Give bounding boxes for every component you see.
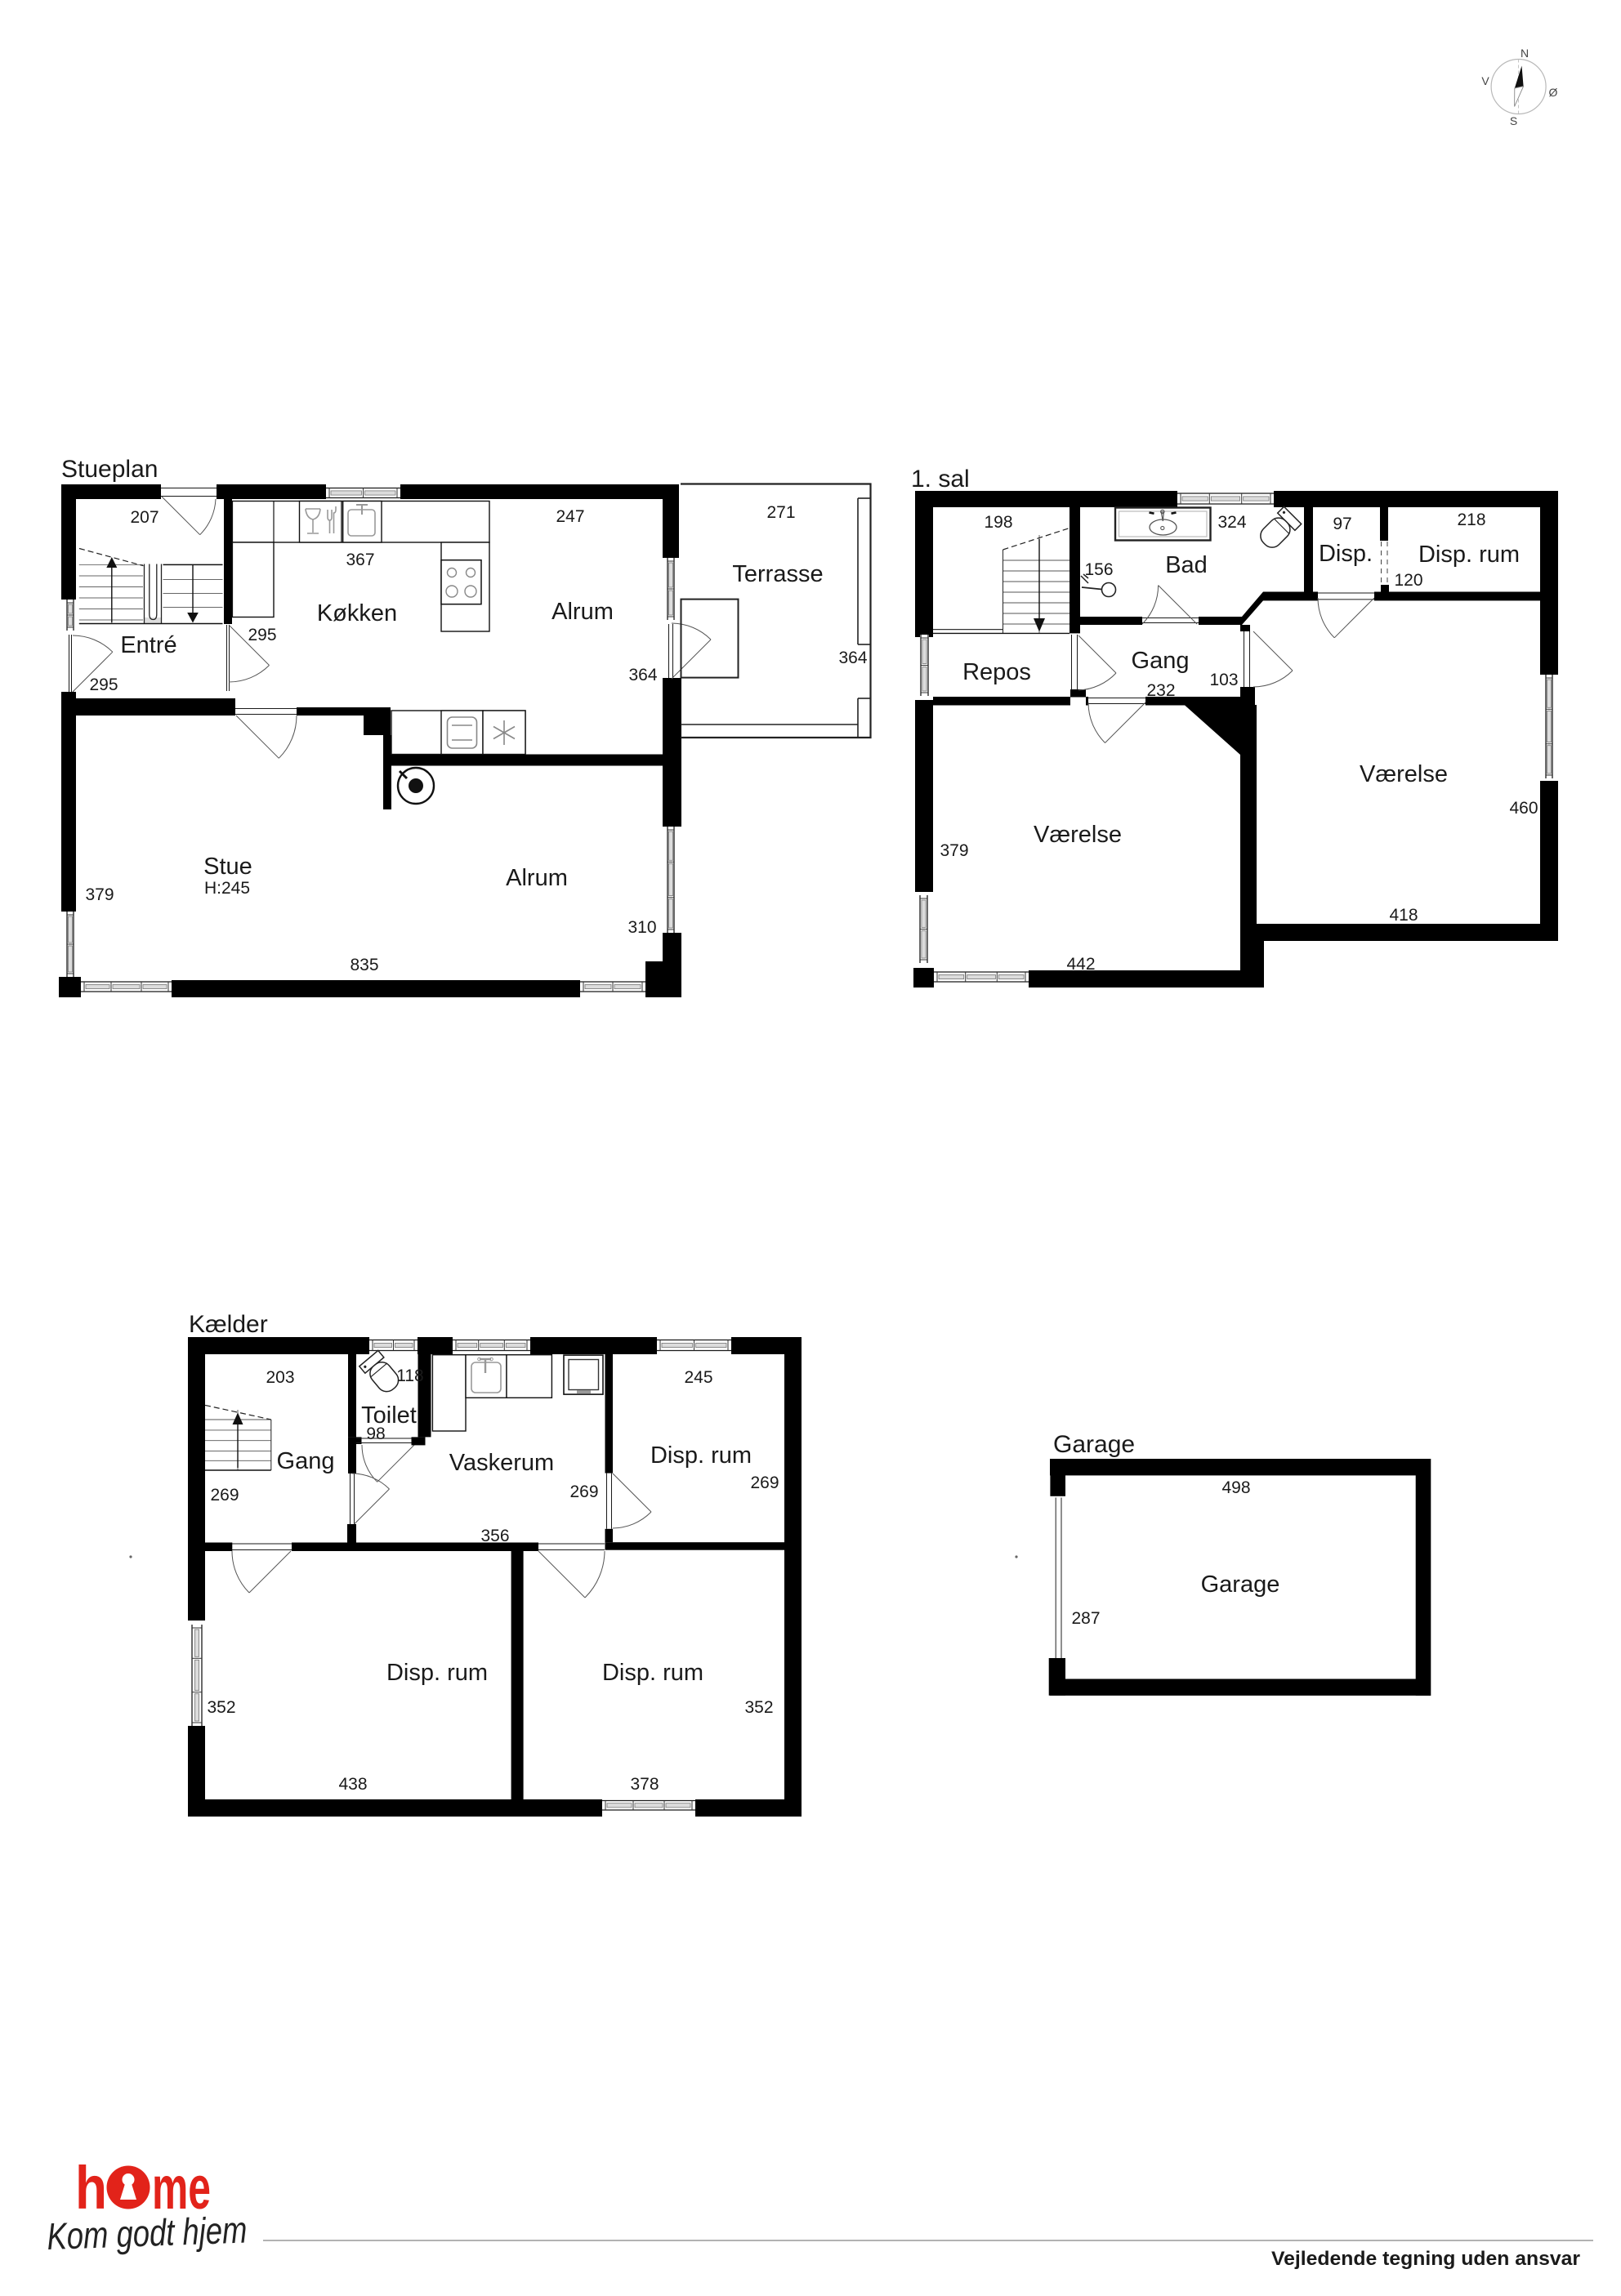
svg-text:271: 271 (766, 503, 795, 522)
svg-text:203: 203 (266, 1368, 294, 1387)
svg-text:Disp. rum: Disp. rum (602, 1660, 703, 1686)
svg-text:367: 367 (346, 551, 374, 569)
svg-text:98: 98 (366, 1424, 385, 1443)
svg-text:379: 379 (940, 841, 968, 860)
svg-text:Kom godt hjem: Kom godt hjem (47, 2208, 248, 2258)
svg-text:Gang: Gang (277, 1448, 335, 1474)
svg-text:352: 352 (744, 1698, 773, 1717)
svg-text:103: 103 (1209, 671, 1238, 689)
svg-text:442: 442 (1066, 955, 1095, 974)
svg-text:364: 364 (838, 649, 867, 667)
svg-text:97: 97 (1333, 515, 1351, 533)
svg-text:498: 498 (1221, 1478, 1250, 1497)
svg-text:Repos: Repos (962, 659, 1031, 685)
svg-text:H:245: H:245 (204, 879, 250, 898)
svg-text:269: 269 (569, 1482, 598, 1501)
svg-text:118: 118 (396, 1366, 423, 1385)
svg-text:120: 120 (1394, 571, 1422, 590)
svg-text:295: 295 (248, 626, 276, 644)
svg-text:352: 352 (207, 1698, 235, 1717)
svg-text:269: 269 (750, 1473, 779, 1492)
svg-text:269: 269 (210, 1486, 239, 1505)
svg-text:Værelse: Værelse (1034, 822, 1122, 848)
svg-text:207: 207 (130, 508, 159, 527)
svg-text:Vaskerum: Vaskerum (449, 1450, 554, 1476)
svg-text:198: 198 (984, 513, 1012, 532)
svg-text:324: 324 (1217, 513, 1246, 532)
svg-text:Værelse: Værelse (1360, 761, 1448, 787)
svg-text:V: V (1481, 74, 1489, 87)
svg-text:Køkken: Køkken (317, 600, 397, 626)
svg-text:Stueplan: Stueplan (61, 456, 158, 483)
svg-text:Disp. rum: Disp. rum (650, 1442, 752, 1469)
svg-text:835: 835 (350, 956, 378, 974)
svg-text:Alrum: Alrum (551, 599, 614, 625)
svg-text:Terrasse: Terrasse (732, 561, 823, 587)
svg-text:Kælder: Kælder (189, 1311, 268, 1338)
svg-text:156: 156 (1084, 560, 1113, 579)
svg-text:h: h (75, 2154, 107, 2222)
svg-text:287: 287 (1071, 1609, 1100, 1628)
svg-text:438: 438 (338, 1775, 367, 1794)
svg-text:Alrum: Alrum (506, 865, 568, 891)
svg-text:Entré: Entré (120, 632, 176, 658)
svg-text:1. sal: 1. sal (911, 466, 970, 493)
svg-text:356: 356 (480, 1527, 509, 1545)
svg-text:Stue: Stue (203, 854, 252, 880)
svg-text:245: 245 (684, 1368, 712, 1387)
svg-text:218: 218 (1457, 510, 1485, 529)
svg-text:Bad: Bad (1165, 552, 1208, 578)
svg-text:Garage: Garage (1053, 1431, 1135, 1458)
svg-text:Ø: Ø (1549, 86, 1558, 99)
svg-text:Garage: Garage (1201, 1572, 1280, 1598)
svg-text:460: 460 (1509, 799, 1538, 818)
svg-text:295: 295 (89, 675, 118, 694)
svg-text:N: N (1521, 47, 1529, 60)
svg-text:247: 247 (556, 507, 584, 526)
svg-text:Disp. rum: Disp. rum (1418, 542, 1520, 568)
svg-text:Gang: Gang (1132, 648, 1190, 674)
svg-text:S: S (1510, 114, 1517, 127)
svg-text:Disp. rum: Disp. rum (386, 1660, 488, 1686)
svg-text:364: 364 (628, 666, 657, 684)
svg-text:378: 378 (630, 1775, 659, 1794)
svg-text:418: 418 (1389, 906, 1418, 925)
svg-text:Disp.: Disp. (1319, 541, 1373, 567)
svg-text:Vejledende tegning uden ansvar: Vejledende tegning uden ansvar (1271, 2248, 1580, 2270)
svg-text:232: 232 (1146, 681, 1175, 700)
svg-text:310: 310 (627, 918, 656, 937)
svg-text:379: 379 (85, 885, 114, 904)
